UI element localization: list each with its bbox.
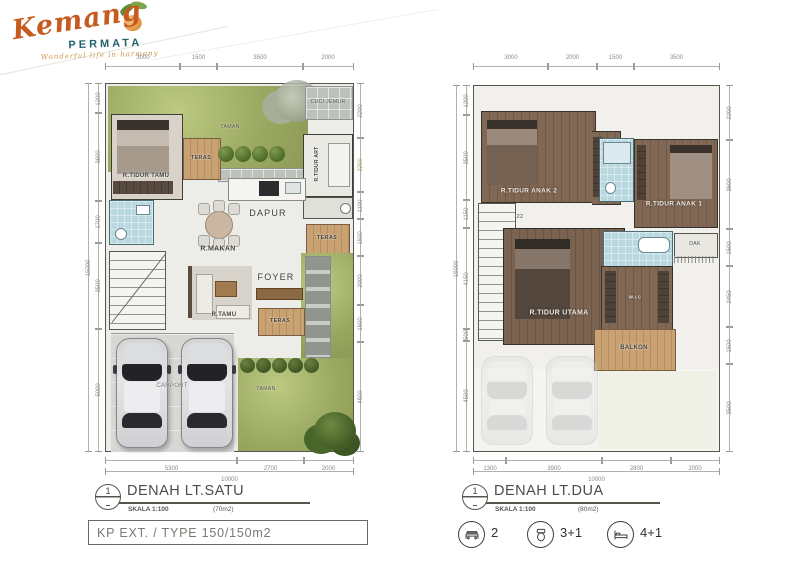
headboard xyxy=(670,145,712,153)
shrub xyxy=(304,358,319,373)
bedroom-anak1 xyxy=(634,139,718,228)
headboard xyxy=(487,120,537,129)
ghost-car xyxy=(481,356,533,445)
room-label-dapur: DAPUR xyxy=(249,208,287,218)
room-label-anak2: R.TIDUR ANAK 2 xyxy=(501,188,557,195)
legend-bath-count: 3+1 xyxy=(560,525,582,540)
wardrobe xyxy=(658,271,669,323)
title-underline xyxy=(486,502,660,504)
dim-segment: 1700 xyxy=(95,200,102,244)
dim-segment: 1500 xyxy=(726,228,733,267)
stair-note: 22 xyxy=(517,214,524,220)
plan2-title: DENAH LT.DUA xyxy=(494,483,604,499)
shrub xyxy=(269,146,285,162)
bathroom-1 xyxy=(109,200,154,245)
room-label-r-makan: R.MAKAN xyxy=(200,246,235,253)
dim-segment: 4500 xyxy=(357,341,364,452)
dim-segment: 1500 xyxy=(726,326,733,365)
toilet xyxy=(115,228,127,240)
dim-total: 15000 xyxy=(453,85,460,452)
shrub xyxy=(252,146,268,162)
dim-segment: 3600 xyxy=(95,112,102,202)
bed xyxy=(670,153,712,199)
shrub xyxy=(288,358,303,373)
room-label-teras: TERAS xyxy=(270,318,290,324)
bathtub xyxy=(638,237,670,253)
tv-cabinet xyxy=(188,266,192,318)
dim-segment: 2000 xyxy=(670,457,720,464)
room-label-anak1: R.TIDUR ANAK 1 xyxy=(646,201,702,208)
bathroom-upper-2 xyxy=(603,231,673,268)
shrub xyxy=(272,358,287,373)
maid-room xyxy=(303,134,353,197)
room-label-r-tidur-art: R.TIDUR ART xyxy=(314,146,320,181)
room-label-teras: TERAS xyxy=(191,155,211,161)
room-label-wic: W.I.C xyxy=(629,295,642,300)
dim-segment: 3500 xyxy=(463,114,470,201)
sofa xyxy=(196,274,213,314)
plan-lt-dua: 3000 2000 1500 3500 15000 1200 3500 1150… xyxy=(452,55,752,485)
maid-bath xyxy=(303,197,353,219)
toilet-icon xyxy=(527,521,554,548)
stepping-path xyxy=(305,256,331,358)
dim-segment: 1100 xyxy=(357,191,364,220)
plan2-area: (80m2) xyxy=(578,506,599,513)
dim-segment: 2000 xyxy=(303,457,354,464)
plan2-number: 1 xyxy=(463,486,487,497)
floorplan-brochure: { "logo": { "name": "Kemang", "sub": "PE… xyxy=(0,0,804,568)
bed-icon xyxy=(607,521,634,548)
plan1-scale: SKALA 1:100 xyxy=(128,506,169,513)
toilet xyxy=(340,203,351,214)
room-label-r-tamu: R.TAMU xyxy=(212,312,237,318)
headboard xyxy=(117,120,169,130)
dim-segment: 2000 xyxy=(547,63,598,70)
dim-segment: 3000 xyxy=(473,63,549,70)
stove xyxy=(259,181,279,196)
room-label-taman: TAMAN xyxy=(256,386,275,392)
dim-segment: 4500 xyxy=(463,340,470,452)
coffee-table xyxy=(215,281,237,297)
dim-segment: 2200 xyxy=(357,137,364,193)
toilet xyxy=(605,182,616,194)
dim-segment: 1500 xyxy=(596,63,635,70)
kitchen-counter xyxy=(228,178,306,201)
dim-segment: 2800 xyxy=(601,457,672,464)
dim-segment: 3900 xyxy=(505,457,603,464)
dim-segment: 2000 xyxy=(357,255,364,306)
sink xyxy=(136,205,150,215)
dim-segment: 1200 xyxy=(95,83,102,114)
tree xyxy=(314,412,356,450)
bathroom-upper-1 xyxy=(599,138,634,202)
dim-segment: 5000 xyxy=(95,328,102,452)
dim-segment: 1500 xyxy=(357,218,364,257)
shrub xyxy=(218,146,234,162)
chair xyxy=(213,200,225,212)
car xyxy=(181,338,233,448)
plan1-number: 1 xyxy=(96,486,120,497)
room-label-taman: TAMAN xyxy=(220,124,239,130)
dim-segment: 2200 xyxy=(357,83,364,139)
dim-total: 10000 xyxy=(473,468,720,475)
stair-line xyxy=(112,253,167,323)
dim-segment: 3500 xyxy=(95,242,102,330)
chair xyxy=(198,203,210,215)
dim-segment: 5300 xyxy=(105,457,238,464)
wardrobe xyxy=(605,271,616,323)
dim-segment: 1300 xyxy=(473,457,507,464)
dim-segment: 3600 xyxy=(726,139,733,230)
sink xyxy=(285,182,301,194)
dim-segment: 3000 xyxy=(105,63,181,70)
plan2-scale: SKALA 1:100 xyxy=(495,506,536,513)
dim-segment: 3500 xyxy=(726,363,733,452)
dim-segment: 2000 xyxy=(302,63,354,70)
wardrobe xyxy=(637,145,646,200)
blanket xyxy=(487,145,537,185)
dim-segment: 3500 xyxy=(216,63,304,70)
dim-total: 10000 xyxy=(105,468,354,475)
dim-segment: 1500 xyxy=(179,63,218,70)
type-label-box: KP EXT. / TYPE 150/150m2 xyxy=(88,520,368,545)
dim-segment: 4150 xyxy=(463,227,470,330)
shrub xyxy=(235,146,251,162)
shrub xyxy=(240,358,255,373)
blanket xyxy=(117,146,169,174)
guest-bedroom xyxy=(111,114,183,200)
car xyxy=(116,338,168,448)
room-label-foyer: FOYER xyxy=(257,272,294,282)
plan-lt-satu: 3000 1500 3500 2000 15000 1200 3600 1700… xyxy=(85,55,385,485)
room-label-cuci-jemur: CUCI JEMUR xyxy=(311,99,346,105)
dim-segment: 1500 xyxy=(357,304,364,343)
wardrobe xyxy=(113,181,173,194)
headboard xyxy=(515,239,570,249)
dim-segment: 3500 xyxy=(633,63,720,70)
dim-segment: 1200 xyxy=(463,85,470,116)
room-label-r-tidur-tamu: R.TIDUR TAMU xyxy=(123,173,169,179)
shower xyxy=(603,142,631,164)
legend-car-count: 2 xyxy=(491,525,498,540)
room-label-teras: TERAS xyxy=(317,235,337,241)
plan1-area: (70m2) xyxy=(213,506,234,513)
shrub xyxy=(256,358,271,373)
room-label-utama: R.TIDUR UTAMA xyxy=(530,310,589,317)
dim-segment: 2200 xyxy=(726,85,733,141)
plan1-number-circle: 1 xyxy=(95,484,121,510)
plot-ground-floor: TAMAN CUCI JEMUR TERAS R.TIDUR TAMU R.TI… xyxy=(105,83,354,452)
room-label-dak: DAK xyxy=(689,241,701,247)
title-underline xyxy=(119,502,310,504)
dim-segment: 2700 xyxy=(236,457,305,464)
dim-segment: 1150 xyxy=(463,199,470,229)
ghost-garden xyxy=(599,371,717,449)
dim-total: 15000 xyxy=(85,83,92,452)
plan1-title: DENAH LT.SATU xyxy=(127,483,244,499)
car-icon xyxy=(458,521,485,548)
dim-segment: 2450 xyxy=(726,265,733,328)
bed xyxy=(328,143,350,187)
plan2-number-circle: 1 xyxy=(462,484,488,510)
ghost-car xyxy=(546,356,598,445)
stairs xyxy=(109,251,166,330)
console-bench xyxy=(256,288,303,300)
chair xyxy=(228,203,240,215)
plot-upper-floor: R.TIDUR ANAK 2 R.TIDUR ANAK 1 DAK R.TIDU… xyxy=(473,85,720,452)
room-label-carport: CARPORT xyxy=(156,383,187,389)
room-label-balkon: BALKON xyxy=(620,345,647,351)
legend-bed-count: 4+1 xyxy=(640,525,662,540)
roof-hatch xyxy=(674,256,716,263)
